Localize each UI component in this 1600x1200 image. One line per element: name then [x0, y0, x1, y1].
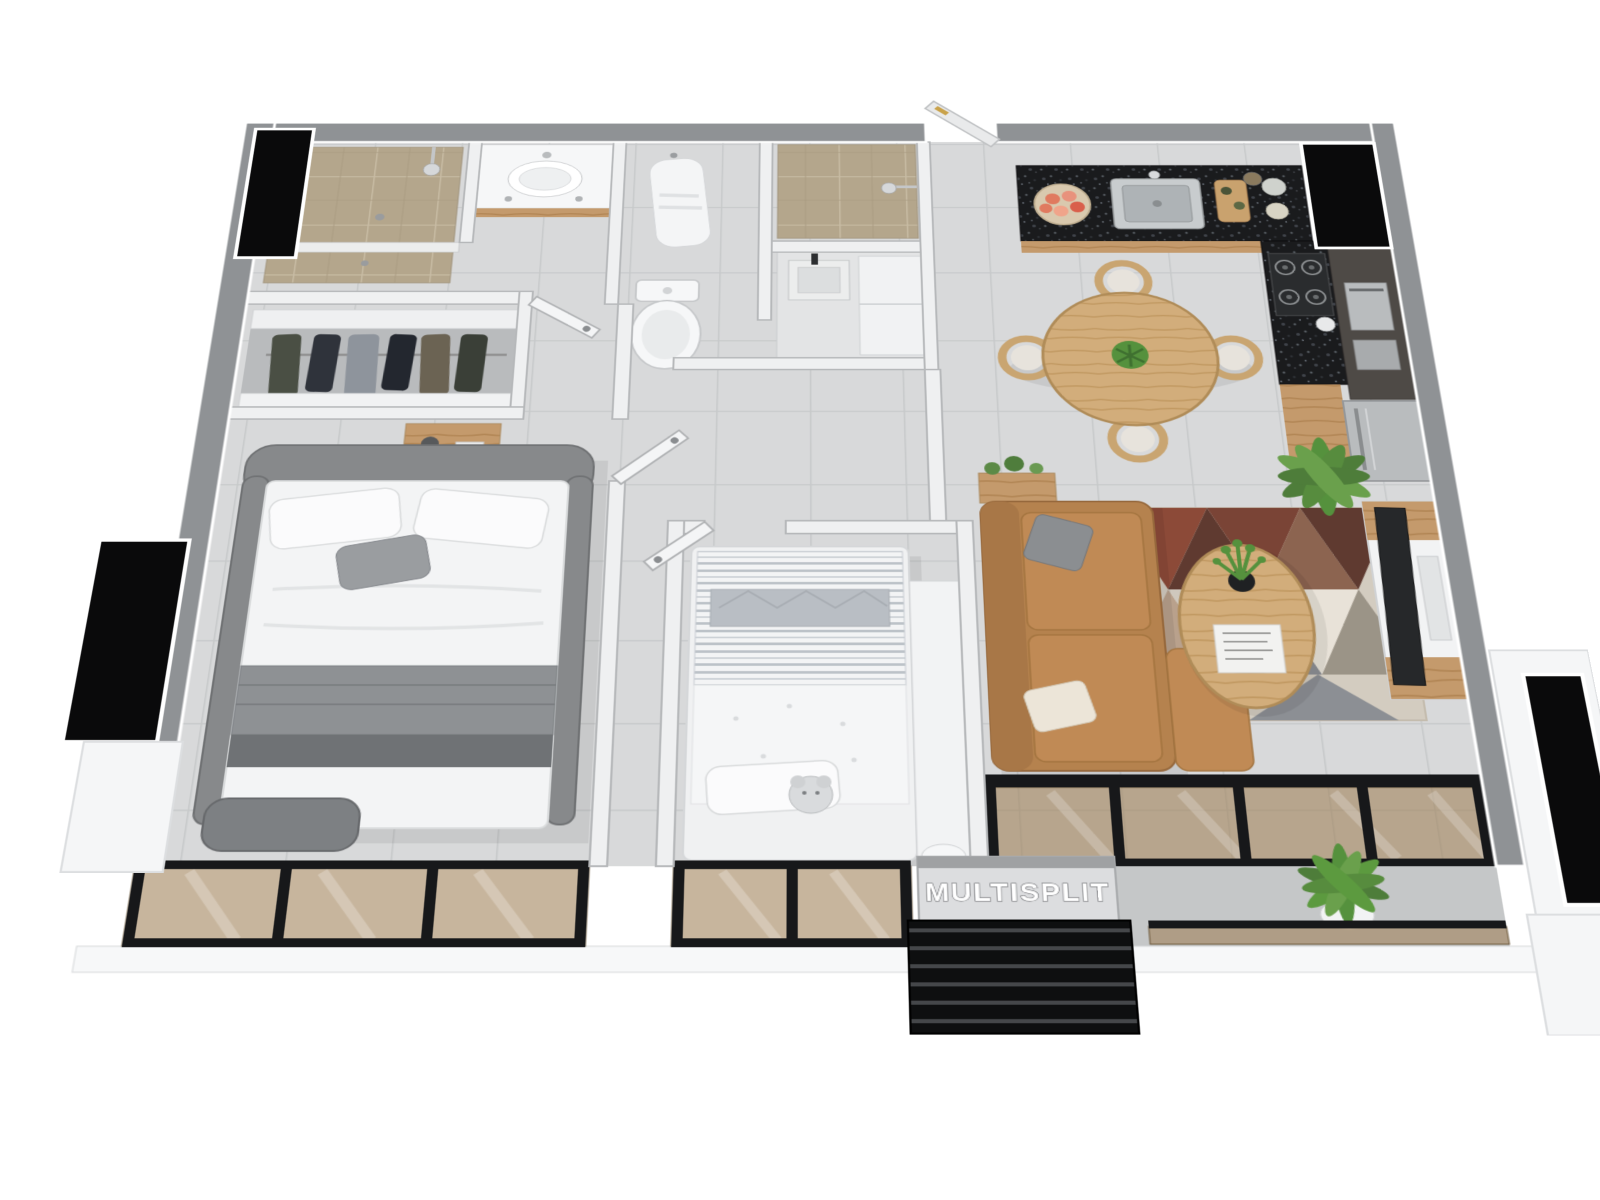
kitchen-faucet: [1148, 171, 1160, 179]
bedroom-bench: [199, 798, 362, 851]
balcony-outer-wall: [72, 946, 1585, 972]
top-wall: [995, 123, 1394, 142]
microwave: [1353, 340, 1400, 369]
living-glass-wall: [984, 774, 1496, 866]
bath-wall: [247, 291, 533, 304]
shower2-tile: [777, 145, 918, 239]
void-block-top-right: [1301, 143, 1392, 248]
second-shower: [777, 145, 918, 239]
outer-wall-wedge-left: [61, 742, 183, 872]
louver-vent: [908, 921, 1139, 1034]
laundry-closet: [777, 252, 929, 358]
wc-right-wall: [758, 142, 773, 320]
bed-runner: [231, 666, 557, 735]
master-balcony: [122, 860, 590, 947]
bed-blanket: [227, 735, 554, 768]
vanity-cabinet: [475, 208, 610, 217]
multisplit-label: MULTISPLIT: [925, 878, 1112, 906]
hall-wall: [673, 358, 925, 370]
top-wall: [243, 123, 926, 142]
bedroom-top-wall: [229, 407, 524, 419]
kitchen-cabinet-front: [1021, 241, 1262, 253]
closet-shelf: [251, 310, 519, 329]
books: [1213, 625, 1286, 673]
single-bed: [683, 547, 918, 861]
floorplan-3d-render: MULTISPLIT: [0, 0, 1600, 1200]
second-bedroom: [682, 547, 970, 870]
bedroom2-top-wall: [786, 521, 974, 534]
shower-arm: [432, 147, 434, 165]
master-bedroom: [188, 424, 610, 851]
multisplit-unit: MULTISPLIT: [906, 857, 1139, 1034]
laundry-top-wall: [772, 241, 934, 252]
outer-mass-bottom-right: [1527, 915, 1600, 1036]
laundry-cabinet: [859, 256, 929, 355]
utility-faucet: [811, 253, 818, 264]
cooktop: [1268, 253, 1334, 315]
balcony-railing-glass: [1149, 926, 1510, 944]
walk-in-closet: [237, 310, 518, 415]
plush-toy: [789, 775, 833, 813]
shower2-head: [881, 183, 896, 194]
entry-door: [925, 101, 999, 146]
sink-basin: [798, 267, 840, 292]
apartment-scene: MULTISPLIT: [0, 83, 1600, 1035]
second-bedroom-balcony: [671, 860, 913, 947]
robe-body: [649, 157, 712, 248]
double-bed: [191, 445, 595, 828]
cutting-board: [1214, 180, 1251, 222]
multisplit-box-top: [917, 857, 1115, 868]
floorplan-svg: MULTISPLIT: [0, 83, 1600, 1035]
